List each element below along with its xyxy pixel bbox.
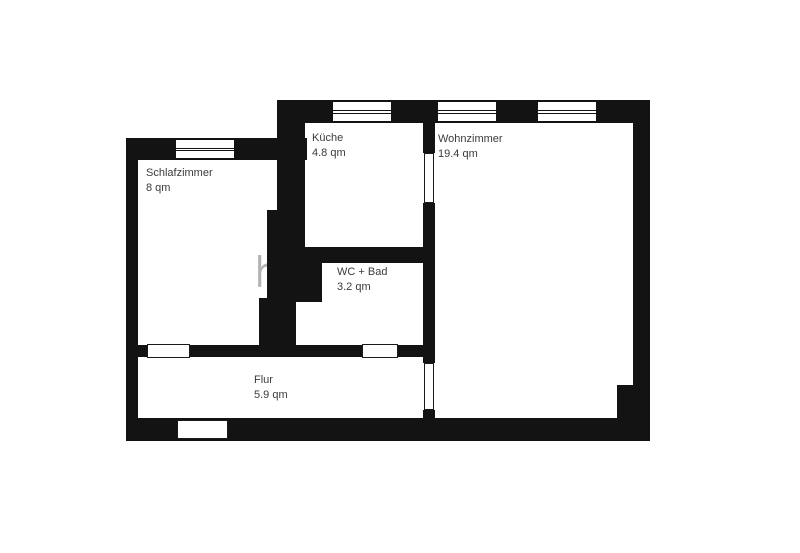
wall-core-right [296, 263, 322, 302]
door-kueche-wohnzimmer-icon [424, 153, 434, 203]
room-area: 8 qm [146, 181, 213, 196]
room-label-wohnzimmer: Wohnzimmer 19.4 qm [438, 132, 503, 162]
room-name: Schlafzimmer [146, 166, 213, 181]
door-entrance-icon [177, 420, 228, 439]
floor-plan: hnu s Schlafzimmer 8 qm Küche 4.8 qm Woh… [0, 0, 800, 553]
window-wohnzimmer-right-icon [537, 101, 597, 122]
window-kueche-icon [332, 101, 392, 122]
room-name: Wohnzimmer [438, 132, 503, 147]
room-area: 5.9 qm [254, 388, 288, 403]
wall-wohnzimmer-mid [423, 203, 435, 363]
room-name: WC + Bad [337, 265, 387, 280]
wall-left-outer [126, 138, 138, 441]
wall-wohnzimmer-upper [423, 123, 435, 153]
room-label-kueche: Küche 4.8 qm [312, 131, 346, 161]
room-name: Flur [254, 373, 288, 388]
door-flur-wohnzimmer-icon [424, 363, 434, 410]
wall-corner-notch [617, 385, 633, 418]
window-schlafzimmer-icon [175, 139, 235, 159]
wall-wohnzimmer-lower [423, 410, 435, 418]
room-area: 19.4 qm [438, 147, 503, 162]
door-schlafzimmer-flur-icon [147, 344, 190, 358]
room-label-flur: Flur 5.9 qm [254, 373, 288, 403]
room-label-schlafzimmer: Schlafzimmer 8 qm [146, 166, 213, 196]
room-label-wc-bad: WC + Bad 3.2 qm [337, 265, 387, 295]
door-wc-flur-icon [362, 344, 398, 358]
wall-below-kueche [267, 247, 435, 263]
room-name: Küche [312, 131, 346, 146]
wall-schlafzimmer-kueche [277, 123, 305, 210]
wall-schlafzimmer-core [267, 210, 305, 247]
room-area: 3.2 qm [337, 280, 387, 295]
wall-core-column [267, 263, 296, 357]
window-wohnzimmer-left-icon [437, 101, 497, 122]
room-area: 4.8 qm [312, 146, 346, 161]
wall-right-outer [633, 123, 650, 441]
